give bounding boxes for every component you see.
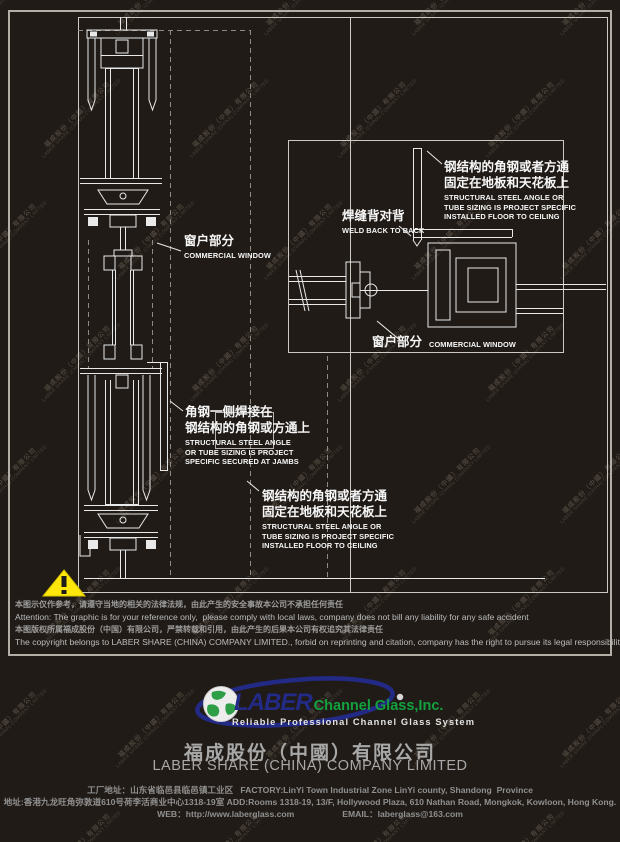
factory-address-line: 工厂地址：山东省临邑县临邑镇工业区 FACTORY:LinYi Town Ind… [0, 784, 620, 796]
disclaimer-zh-1: 本图示仅作参考，请遵守当地的相关的法律法规，由此产生的安全事故本公司不承担任何责… [15, 599, 620, 611]
label-en: COMMERCIAL WINDOW [429, 340, 516, 350]
label-commercial-window-left: 窗户部分 COMMERCIAL WINDOW [184, 233, 271, 261]
annotation-zh: 钢结构的角钢或者方通 [262, 488, 394, 504]
disclaimer-en-2: The copyright belongs to LABER SHARE (CH… [15, 636, 620, 648]
company-name-en: LABER SHARE (CHINA) COMPANY LIMITED [0, 758, 620, 774]
logo-wordmark: LABER Channel Glass,Inc. [234, 692, 443, 714]
label-zh: 窗户部分 [184, 233, 271, 249]
company-logo: LABER Channel Glass,Inc. Reliable Profes… [0, 672, 620, 732]
email-address: EMAIL：laberglass@163.com [342, 808, 463, 820]
annotation-en: INSTALLED FLOOR TO CEILING [262, 541, 394, 551]
logo-suffix: Channel Glass,Inc. [314, 698, 444, 714]
annotation-floor-ceiling-left: 钢结构的角钢或者方通 固定在地板和天花板上 STRUCTURAL STEEL A… [262, 488, 394, 551]
office-address-line: 地址:香港九龙旺角弥敦道610号荷李活商业中心1318-19室 ADD:Room… [0, 796, 620, 808]
annotation-en: WELD BACK TO BACK [342, 226, 424, 236]
logo-tagline: Reliable Professional Channel Glass Syst… [232, 717, 428, 727]
website-url: WEB：http://www.laberglass.com [157, 808, 294, 820]
footer: LABER Channel Glass,Inc. Reliable Profes… [0, 656, 620, 842]
annotation-en: STRUCTURAL STEEL ANGLE OR [444, 193, 576, 203]
annotation-zh: 钢结构的角钢或方通上 [185, 420, 310, 436]
annotation-zh: 角钢一侧焊接在 [185, 404, 310, 420]
annotation-en: INSTALLED FLOOR TO CEILING [444, 212, 576, 222]
annotation-weld-back-to-back: 焊缝背对背 WELD BACK TO BACK [342, 208, 424, 236]
annotation-en: STRUCTURAL STEEL ANGLE OR [262, 522, 394, 532]
annotation-floor-ceiling-panel: 钢结构的角钢或者方通 固定在地板和天花板上 STRUCTURAL STEEL A… [444, 159, 576, 222]
logo-name: LABER [234, 692, 312, 714]
drawing-sheet: 福成股份（中國）有限公司LABER SHARE (CHINA) COMPANY … [0, 0, 620, 842]
label-en: COMMERCIAL WINDOW [184, 251, 271, 261]
disclaimer-block: 本图示仅作参考，请遵守当地的相关的法律法规，由此产生的安全事故本公司不承担任何责… [15, 599, 620, 649]
annotation-zh: 固定在地板和天花板上 [444, 175, 576, 191]
annotation-en: STRUCTURAL STEEL ANGLE [185, 438, 310, 448]
annotation-en: TUBE SIZING IS PROJECT SPECIFIC [262, 532, 394, 542]
annotation-zh: 焊缝背对背 [342, 208, 424, 224]
label-commercial-window-panel: 窗户部分 COMMERCIAL WINDOW [372, 334, 516, 350]
contact-line: WEB：http://www.laberglass.com EMAIL：labe… [0, 808, 620, 820]
label-zh: 窗户部分 [372, 334, 422, 350]
annotation-jamb-weld: 角钢一侧焊接在 钢结构的角钢或方通上 STRUCTURAL STEEL ANGL… [185, 404, 310, 467]
disclaimer-en-1: Attention: The graphic is for your refer… [15, 611, 620, 623]
annotation-en: TUBE SIZING IS PROJECT SPECIFIC [444, 203, 576, 213]
disclaimer-zh-2: 本图版权所属福成股份（中国）有限公司，严禁转载和引用，由此产生的后果本公司有权追… [15, 624, 620, 636]
annotation-zh: 固定在地板和天花板上 [262, 504, 394, 520]
left-section-drawing [80, 17, 168, 578]
annotation-zh: 钢结构的角钢或者方通 [444, 159, 576, 175]
annotation-en: SPECIFIC SECURED AT JAMBS [185, 457, 310, 467]
annotation-en: OR TUBE SIZING IS PROJECT [185, 448, 310, 458]
cad-drawing [0, 0, 620, 660]
